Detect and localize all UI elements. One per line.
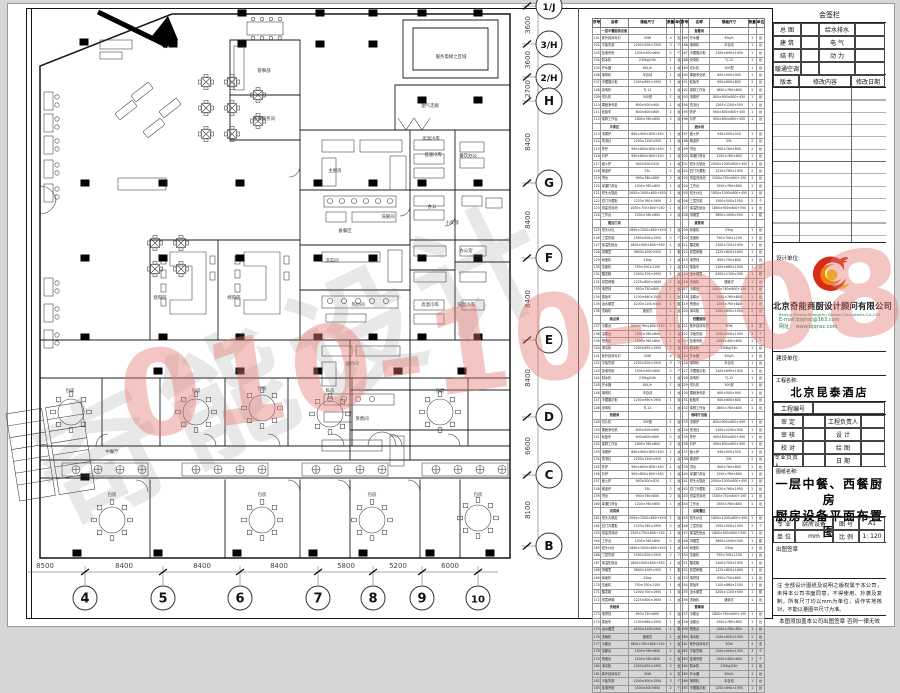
person-label: 工程负责人 — [825, 415, 861, 428]
eq-item-row: 143挂墙吊柜1500×400×6002个 — [593, 367, 683, 374]
eq-item-row: 170压面机750×700×11001台 — [593, 582, 683, 589]
eq-item-row: 206三层货架1500×500×15502个 — [681, 197, 765, 204]
eq-item-row: 256洗碗机通道式1台 — [681, 597, 765, 604]
plan-room-label: 包房 — [368, 491, 377, 498]
project-name: 北京昆泰酒店 — [773, 384, 886, 400]
eq-item-row: 250压面机750×700×11001台 — [681, 552, 765, 559]
column — [154, 368, 163, 375]
eq-item-row: 209和面机25kg1台 — [681, 227, 765, 234]
eq-item-row: 233汤粥炉800×900×800+4501台 — [681, 419, 765, 426]
eq-item-row: 255运水烟罩4200×1100×5001套 — [681, 589, 765, 596]
eq-item-row: 146咖啡机半自动1台 — [593, 390, 683, 397]
plan-room-label: 包房 — [474, 491, 483, 498]
eq-item-row: 234低汤灶1200×1200×5501台 — [681, 427, 765, 434]
eq-item-row: 144制冰机230kg/24h1台 — [593, 375, 683, 382]
grid-bubble-label: 9 — [417, 592, 426, 607]
column — [369, 180, 378, 187]
eq-item-row: 232保鲜工作台1800×760×8002台 — [681, 404, 765, 411]
eq-item-row: 157面火炉940×500×5201台 — [593, 478, 683, 485]
eq-item-row: 172双层烤箱1225×800×16401台 — [593, 597, 683, 604]
eq-item-row: 176洗碗机通道式1台 — [593, 634, 683, 641]
eq-item-row: 163双星洗涤池1500×750×800+1501台 — [593, 530, 683, 537]
dimension-label: 3600 — [524, 51, 532, 69]
eq-item-row: 153汤粥炉800×900×800+4501台 — [593, 449, 683, 456]
rev-header-cell: 版本 — [773, 75, 799, 87]
eq-item-row: 219残食台1200×760×8001台 — [681, 301, 765, 308]
eq-section-row: 一层中餐厨房设备 — [593, 28, 683, 35]
revision-header: 版本修改内容修改日期 — [773, 75, 886, 88]
plan-room-label: 低温冷库 — [457, 301, 475, 308]
grid-bubble-label: 8 — [368, 592, 377, 607]
eq-item-row: 142平板货架1200×500×15503个 — [593, 360, 683, 367]
eq-item-row: 108绞肉机TJ-121台 — [593, 87, 683, 94]
interior-walls — [40, 20, 510, 558]
plan-room-label: 包房 — [108, 491, 117, 498]
dimension-label: 5800 — [337, 562, 355, 570]
column — [236, 334, 245, 341]
plan-room-label: 面点间 — [345, 360, 358, 367]
eq-item-row: 117面火炉940×500×5201台 — [593, 161, 683, 168]
dimension-label: 8400 — [524, 133, 532, 151]
column — [314, 368, 323, 375]
eq-item-row: 193汤粥炉800×900×800+4501台 — [681, 94, 765, 101]
eq-item-row: 187冷藏展示柜1200×690×19501台 — [681, 50, 765, 57]
column — [80, 39, 89, 46]
eq-item-row: 180消毒柜1200×650×19502台 — [593, 663, 683, 670]
eq-item-row: 166三层货架1500×500×15502个 — [593, 552, 683, 559]
grid-bubble-label: 6 — [235, 592, 244, 607]
eq-item-row: 152保鲜工作台1800×760×8002台 — [593, 441, 683, 448]
eq-item-row: 210压面机750×700×11001台 — [681, 234, 765, 241]
project-no-value — [813, 402, 885, 414]
meta-cell: 单 位 — [773, 530, 795, 543]
meta-cell: 比 例 — [833, 530, 859, 543]
eq-item-row: 231砧板车600×600×8002台 — [681, 397, 765, 404]
eq-item-row: 194低汤灶1200×1200×5501台 — [681, 101, 765, 108]
dimension-label: 6600 — [524, 437, 532, 455]
project-no-label: 工程编号 — [773, 402, 813, 414]
eq-item-row: 125双头炒灶1800×1000×800+4501台 — [593, 227, 683, 234]
dimension-label: 8400 — [115, 562, 133, 570]
column — [314, 255, 323, 262]
eq-item-row: 266咖啡机半自动1台 — [681, 678, 765, 685]
column — [474, 97, 483, 104]
eq-item-row: 122四门冷藏柜1220×760×19502台 — [593, 197, 683, 204]
grid-axes: 1/J3/H2/HHGFEDCB360036002700840084008400… — [28, 0, 562, 610]
plan-room-label: 餐饮办公 — [459, 152, 477, 159]
plan-room-label: 低温冷库 — [424, 151, 442, 158]
eq-item-row: 221紫外线消毒灯30W4支 — [681, 323, 765, 330]
eq-item-row: 116扒炉900×800×800+4501台 — [593, 153, 683, 160]
eq-col-header: 规格尺寸 — [710, 19, 748, 28]
eq-item-row: 171醒发箱1200×700×19501台 — [593, 589, 683, 596]
drawing-title-line1: 一层中餐、西餐厨房 — [773, 476, 886, 508]
eq-item-row: 169和面机25kg1台 — [593, 574, 683, 581]
meta-cell: A1 — [859, 517, 885, 530]
building-outline — [40, 14, 510, 558]
project-name-label: 工程名称: — [773, 376, 886, 384]
eq-item-row: 251醒发箱1200×700×19501台 — [681, 560, 765, 567]
eq-item-row: 177污碟台1800×760×800+1501台 — [593, 641, 683, 648]
plan-room-label: 主厨房 — [328, 167, 342, 174]
plan-room-label: 管事部 — [257, 67, 271, 74]
eq-item-row: 104制冰机230kg/24h1台 — [593, 57, 683, 64]
dimension-label: 8400 — [270, 562, 288, 570]
eq-item-row: 119拼台900×760×8002台 — [593, 175, 683, 182]
copyright-note: 注 全部设计图纸及说明之版权属于本公司，未得本公司书面同意，不得使用、抄袭及复制… — [773, 579, 886, 616]
eq-item-row: 200单通打荷台1200×760×8001台 — [681, 153, 765, 160]
eq-item-row: 131醒发箱1200×700×19501台 — [593, 271, 683, 278]
column — [458, 368, 467, 375]
company-website: 网址： www.bjqnsc.com — [773, 323, 886, 330]
column — [418, 180, 427, 187]
grid-bubble-label: 3/H — [540, 41, 557, 51]
eq-section-row: 管事部 — [681, 604, 765, 611]
person-label: 审 核 — [773, 428, 803, 441]
sign-label: 建 筑 — [773, 36, 801, 49]
company-name-cn: 北京奇能商厨设计顾问有限公司 — [773, 300, 886, 312]
eq-item-row: 179残食台1200×760×8001台 — [593, 656, 683, 663]
meta-cell: 1: 120 — [859, 530, 885, 543]
eq-item-row: 178洁碟台1500×760×8001台 — [593, 648, 683, 655]
eq-item-row: 139残食台1200×760×8001台 — [593, 338, 683, 345]
eq-item-row: 160单通打荷台1200×760×8001台 — [593, 501, 683, 508]
eq-item-row: 213电饼铛650×750×8001台 — [681, 257, 765, 264]
eq-col-header: 规格尺寸 — [628, 19, 666, 28]
eq-col-header: 序号 — [593, 19, 601, 28]
eq-item-row: 154低汤灶1200×1200×5501台 — [593, 456, 683, 463]
eq-item-row: 254蒸饭车1100×660×15001台 — [681, 582, 765, 589]
dimension-label: 8400 — [524, 369, 532, 387]
eq-item-row: 198微波炉25L2台 — [681, 138, 765, 145]
eq-item-row: 229切片机300型1台 — [681, 382, 765, 389]
grid-bubble-label: 5 — [158, 592, 167, 607]
eq-item-row: 140消毒柜1200×650×19502台 — [593, 345, 683, 352]
plan-room-label: 备餐区 — [338, 227, 352, 234]
column — [81, 255, 90, 262]
long-table — [247, 17, 283, 40]
eq-item-row: 120单通打荷台1200×760×8001台 — [593, 183, 683, 190]
eq-item-row: 216洗碗机通道式1台 — [681, 279, 765, 286]
plan-room-label: 服务电梯之区域 — [436, 53, 467, 60]
column — [159, 255, 168, 262]
meta-cell: 厨房设备 — [795, 517, 833, 530]
eq-item-row: 135运水烟罩4200×1100×5001套 — [593, 301, 683, 308]
eq-item-row: 164工作台1500×760×8002台 — [593, 537, 683, 544]
column — [81, 474, 90, 481]
column — [236, 180, 245, 187]
eq-item-row: 136洗碗机通道式1台 — [593, 308, 683, 315]
eq-item-row: 130压面机750×700×11001台 — [593, 264, 683, 271]
eq-item-row: 158微波炉25L2台 — [593, 486, 683, 493]
eq-item-row: 105开水器60L/h1台 — [593, 64, 683, 71]
column — [154, 550, 163, 557]
column — [73, 550, 82, 557]
build-unit-box: 建设单位: — [773, 352, 886, 376]
eq-item-row: 207保温售饭台1800×900×800+5501台 — [681, 205, 765, 212]
eq-col-header: 名称 — [601, 19, 629, 28]
eq-item-row: 190果蔬净化机800×500×9001台 — [681, 72, 765, 79]
eq-item-row: 155炸炉900×800×800+4501台 — [593, 464, 683, 471]
eq-item-row: 132双层烤箱1225×800×16401台 — [593, 279, 683, 286]
column — [369, 10, 378, 17]
dimension-label: 8400 — [524, 290, 532, 308]
rev-header-cell: 修改内容 — [799, 75, 851, 87]
dimension-label: 6000 — [441, 562, 459, 570]
eq-item-row: 202四门冷藏柜1220×760×19502台 — [681, 168, 765, 175]
plan-room-label: 高温冷库 — [422, 135, 440, 142]
eq-item-row: 220消毒柜1200×650×19502台 — [681, 308, 765, 315]
plan-room-label: 包房 — [66, 387, 75, 394]
eq-item-row: 138洁碟台1500×760×8001台 — [593, 331, 683, 338]
personnel-grid: 审 定工程负责人审 核设 计校 对绘 图专业负责人日 期 — [773, 415, 886, 467]
drawing-name-box: 图纸名称: 一层中餐、西餐厨房 厨房设备平面布置图 — [773, 467, 886, 517]
eq-col-header: 数量 — [748, 19, 756, 28]
column — [316, 41, 325, 48]
column — [369, 41, 378, 48]
grid-bubble-label: E — [545, 333, 553, 347]
eq-item-row: 217污碟台1800×760×800+1501台 — [681, 286, 765, 293]
eq-item-row: 238微波炉25L2台 — [681, 456, 765, 463]
eq-item-row: 162四门冷藏柜1220×760×19502台 — [593, 523, 683, 530]
eq-item-row: 227冷藏展示柜1200×690×19501台 — [681, 367, 765, 374]
eq-section-row: 酒水间 — [681, 124, 765, 131]
eq-col-header: 数量 — [667, 19, 675, 28]
eq-item-row: 127保温售饭台1800×900×800+5501台 — [593, 242, 683, 249]
dimension-label: 2700 — [524, 80, 532, 98]
sign-label: 电 气 — [819, 36, 855, 49]
dimension-label: 8100 — [524, 501, 532, 519]
dimension-label: 8500 — [36, 562, 54, 570]
eq-item-row: 237面火炉940×500×5201台 — [681, 449, 765, 456]
floor-plan: 管事部备餐服务间服务电梯之区域烟气走廊主厨房洗碗间备餐区凉菜间热炒间面点间蒸煮间… — [0, 0, 586, 629]
column — [474, 180, 483, 187]
eq-section-row: 面点间 — [593, 316, 683, 323]
dimension-label: 8400 — [524, 211, 532, 229]
eq-item-row: 240单通打荷台1200×760×8001台 — [681, 471, 765, 478]
plan-room-label: 高温冷库 — [421, 301, 439, 308]
room-labels: 管事部备餐服务间服务电梯之区域烟气走廊主厨房洗碗间备餐区凉菜间热炒间面点间蒸煮间… — [66, 53, 483, 498]
grid-bubble-label: 2/H — [540, 74, 557, 84]
person-label: 日 期 — [825, 454, 861, 467]
plan-room-label: 小卖部 — [445, 219, 459, 226]
eq-item-row: 109切片机300型1台 — [593, 94, 683, 101]
column — [309, 550, 318, 557]
dimension-label: 5200 — [389, 562, 407, 570]
door-arcs — [40, 166, 460, 492]
eq-item-row: 195炸炉900×800×800+4501台 — [681, 109, 765, 116]
eq-item-row: 161双头大锅灶2000×1000×800+4501台 — [593, 515, 683, 522]
column — [238, 41, 247, 48]
eq-section-row: 自助餐区 — [681, 508, 765, 515]
eq-section-row: 蒸煮间 — [681, 220, 765, 227]
column — [418, 334, 427, 341]
eq-item-row: 113汤粥炉800×900×800+4501台 — [593, 131, 683, 138]
design-unit-label: 设计单位: — [776, 254, 800, 262]
eq-section-row: 粗加工间 — [593, 220, 683, 227]
eq-item-row: 102平板货架1200×500×15503个 — [593, 42, 683, 49]
column — [474, 334, 483, 341]
eq-section-row: 冷库区 — [593, 124, 683, 131]
person-label: 设 计 — [825, 428, 861, 441]
column — [233, 550, 242, 557]
column — [159, 334, 168, 341]
plan-room-label: 备餐服务间 — [253, 115, 275, 122]
eq-section-row: 咖啡厅设备 — [681, 412, 765, 419]
person-label: 绘 图 — [825, 441, 861, 454]
seal-footer: 本图须加盖本公司出图签章 否则一律无效 — [773, 616, 886, 628]
plan-room-label: 洗碗间 — [381, 213, 394, 220]
eq-item-row: 126三层货架1500×500×15502个 — [593, 234, 683, 241]
column — [236, 255, 245, 262]
eq-item-row: 235炸炉900×800×800+4501台 — [681, 434, 765, 441]
sign-label: 给水排水 — [819, 23, 855, 36]
eq-item-row: 186咖啡机半自动1台 — [681, 42, 765, 49]
title-block: 会签栏 总 图给水排水建 筑电 气结 构动 力暖通空调 版本修改内容修改日期 设… — [772, 8, 886, 619]
eq-section-row: 备餐间 — [681, 28, 765, 35]
eq-item-row: 265开水器60L/h1台 — [681, 670, 765, 677]
eq-section-row: 凉菜间 — [593, 508, 683, 515]
eq-item-row: 253电饼铛650×750×8001台 — [681, 574, 765, 581]
eq-item-row: 196扒炉900×800×800+4501台 — [681, 116, 765, 123]
seal-box: 出图签章 — [773, 543, 886, 579]
eq-section-row: 洗碗间 — [593, 604, 683, 611]
eq-col-header: 单位 — [756, 19, 764, 28]
eq-col-header: 序号 — [681, 19, 689, 28]
grid-bubble-label: C — [545, 468, 554, 482]
eq-item-row: 103挂墙吊柜1500×400×6002个 — [593, 50, 683, 57]
grid-bubble-label: H — [544, 94, 554, 108]
sign-label: 动 力 — [819, 49, 855, 62]
eq-item-row: 134蒸饭车1100×660×15001台 — [593, 294, 683, 301]
person-label: 专业负责人 — [773, 454, 803, 467]
eq-item-row: 242四门冷藏柜1220×760×19502台 — [681, 486, 765, 493]
grid-bubble-label: D — [544, 410, 554, 424]
column — [238, 10, 247, 17]
eq-item-row: 218洁碟台1500×760×8001台 — [681, 294, 765, 301]
column — [418, 10, 427, 17]
plan-room-label: 办公 — [428, 203, 437, 210]
furniture-layer — [44, 40, 508, 541]
eq-item-row: 181紫外线消毒灯30W4支 — [593, 670, 683, 677]
eq-item-row: 264制冰机230kg/24h1台 — [681, 663, 765, 670]
eq-item-row: 183挂墙吊柜1500×400×6002个 — [593, 685, 683, 692]
eq-item-row: 112保鲜工作台1800×760×8002台 — [593, 116, 683, 123]
eq-item-row: 150果蔬净化机800×500×9001台 — [593, 427, 683, 434]
eq-item-row: 114低汤灶1200×1200×5501台 — [593, 138, 683, 145]
sign-label: 暖通空调 — [773, 62, 801, 75]
plan-room-label: 包房 — [258, 385, 267, 392]
eq-item-row: 224制冰机230kg/24h1台 — [681, 345, 765, 352]
eq-item-row: 133电饼铛650×750×8001台 — [593, 286, 683, 293]
eq-item-row: 101紫外线消毒灯30W4支 — [593, 35, 683, 42]
eq-item-row: 214蒸饭车1100×660×15001台 — [681, 264, 765, 271]
plan-room-label: 中餐厅 — [105, 448, 119, 455]
column — [418, 255, 427, 262]
eq-item-row: 203双星洗涤池1500×750×800+1501台 — [681, 175, 765, 182]
eq-item-row: 168排烟罩3600×1000×5001套 — [593, 567, 683, 574]
eq-item-row: 226咖啡机半自动1台 — [681, 360, 765, 367]
column — [418, 97, 427, 104]
grid-bubble-label: 1/J — [543, 3, 556, 13]
design-unit-box: 设计单位: 北京奇能商厨设计顾问有限公司 Beijing Qineng Shan… — [773, 252, 886, 352]
eq-item-row: 260消毒柜1200×650×19502台 — [681, 634, 765, 641]
column — [369, 255, 378, 262]
column — [474, 10, 483, 17]
eq-section-row: 热厨间 — [593, 412, 683, 419]
eq-item-row: 137污碟台1800×760×800+1501台 — [593, 323, 683, 330]
eq-item-row: 212双层烤箱1225×800×16401台 — [681, 249, 765, 256]
eq-item-row: 257污碟台1800×760×800+1501台 — [681, 611, 765, 618]
eq-item-row: 148绞肉机TJ-121台 — [593, 404, 683, 411]
eq-item-row: 259残食台1200×760×8001台 — [681, 626, 765, 633]
sign-column-title: 会签栏 — [773, 8, 886, 23]
eq-item-row: 159拼台900×760×8002台 — [593, 493, 683, 500]
eq-item-row: 111砧板车600×600×8002台 — [593, 109, 683, 116]
eq-item-row: 191砧板车600×600×8002台 — [681, 79, 765, 86]
plan-room-label: 热炒间 — [351, 301, 364, 308]
eq-item-row: 241双头大锅灶2000×1000×800+4501台 — [681, 478, 765, 485]
rev-header-cell: 修改日期 — [851, 75, 885, 87]
eq-item-row: 205双头炒灶1800×1000×800+4501台 — [681, 190, 765, 197]
revision-table-empty — [773, 88, 886, 243]
eq-item-row: 204工作台1500×760×8002台 — [681, 183, 765, 190]
seal-label: 出图签章 — [776, 545, 798, 553]
column — [81, 334, 90, 341]
eq-item-row: 236扒炉900×800×800+4501台 — [681, 441, 765, 448]
eq-item-row: 182平板货架1200×500×15503个 — [593, 678, 683, 685]
eq-item-row: 245双头炒灶1800×1000×800+4501台 — [681, 515, 765, 522]
eq-item-row: 167保温售饭台1800×900×800+5501台 — [593, 560, 683, 567]
build-unit-label: 建设单位: — [776, 354, 800, 362]
eq-item-row: 261紫外线消毒灯30W4支 — [681, 641, 765, 648]
duct-zigzag — [398, 118, 430, 130]
sign-label: 总 图 — [773, 23, 801, 36]
meta-cell: 图 号 — [833, 517, 859, 530]
eq-item-row: 215运水烟罩4200×1100×5001套 — [681, 271, 765, 278]
eq-item-row: 267冷藏展示柜1200×690×19501台 — [681, 685, 765, 692]
grid-bubble-label: 4 — [80, 592, 89, 607]
grid-bubble-label: 10 — [471, 595, 485, 606]
dimension-label: 3600 — [524, 16, 532, 34]
eq-item-row: 201双头大锅灶2000×1000×800+4501台 — [681, 161, 765, 168]
eq-item-row: 223挂墙吊柜1500×400×6002个 — [681, 338, 765, 345]
eq-item-row: 121双头大锅灶2000×1000×800+4501台 — [593, 190, 683, 197]
grid-bubble-label: 7 — [313, 592, 322, 607]
project-no-row: 工程编号 — [773, 402, 886, 415]
eq-item-row: 243双星洗涤池1500×750×800+1501台 — [681, 493, 765, 500]
grid-bubble-label: B — [544, 539, 553, 553]
plan-room-label: 包房 — [192, 387, 201, 394]
eq-item-row: 118微波炉25L2台 — [593, 168, 683, 175]
eq-item-row: 185开水器60L/h1台 — [681, 35, 765, 42]
eq-item-row: 208排烟罩3600×1000×5001套 — [681, 212, 765, 219]
eq-item-row: 225开水器60L/h1台 — [681, 353, 765, 360]
column — [316, 10, 325, 17]
column — [169, 41, 178, 48]
grid-bubble-label: G — [544, 176, 554, 190]
meta-cell: 专 业 — [773, 517, 795, 530]
column — [81, 180, 90, 187]
sign-grid: 总 图给水排水建 筑电 气结 构动 力暖通空调 — [773, 23, 886, 75]
eq-item-row: 115炸炉900×800×800+4501台 — [593, 146, 683, 153]
eq-item-row: 244工作台1500×760×8002台 — [681, 501, 765, 508]
plan-room-label: 包房 — [258, 491, 267, 498]
eq-item-row: 149切片机300型1台 — [593, 419, 683, 426]
eq-item-row: 174蒸饭车1100×660×15001台 — [593, 619, 683, 626]
plan-room-label: 烟气走廊 — [421, 102, 439, 109]
eq-item-row: 145开水器60L/h1台 — [593, 382, 683, 389]
